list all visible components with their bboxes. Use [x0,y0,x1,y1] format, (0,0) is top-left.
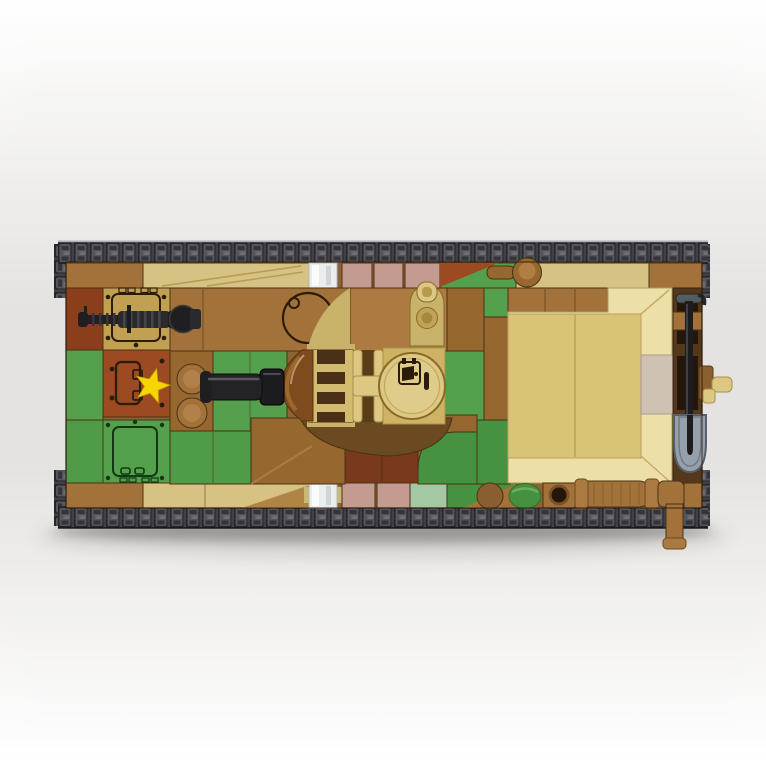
photo-stage [0,0,766,766]
headlight-glint [312,485,319,506]
icon-body [402,366,414,381]
rivet [134,343,139,348]
brick [342,263,372,288]
periscope-stud-inner [422,313,433,324]
grille-rung [309,384,353,392]
mg-front-sight [84,306,87,316]
rivet [160,359,165,364]
shovel-shaft [685,301,693,429]
muffler-collar [645,479,659,509]
track-bottom-shadow [58,527,708,529]
mg-mount-base [190,309,201,329]
gun-muzzle [200,371,212,403]
brick [410,483,447,508]
brick [66,350,103,420]
hull-bottom-row [66,483,516,508]
hatch-slot-print [424,372,429,390]
crank-handle [699,366,732,403]
tank-top-view [0,0,766,766]
icon-prong [402,358,406,364]
rivet [160,403,165,408]
muffler-collar [575,479,588,509]
round-stud [477,483,503,509]
brick [442,351,484,420]
rivet [110,367,115,372]
rivet [160,423,164,427]
headlight-shade [326,266,331,285]
brick [477,420,510,484]
crank-knob [712,377,732,392]
brick [66,483,143,508]
brick [377,483,410,508]
brick [684,483,702,508]
pin-hole [550,486,568,504]
rivet [106,295,111,300]
glacis-slope [143,263,309,288]
brick [508,288,608,314]
exhaust-tip [663,538,686,549]
engine-deck [508,288,673,483]
brick [342,483,375,508]
greige-tile [641,355,673,414]
brick [484,317,510,432]
stud-highlight [183,370,201,388]
exhaust-elbow [658,481,684,507]
rivet [133,420,137,424]
rivet [162,295,167,300]
grille-rung [309,404,353,412]
stud-highlight [183,404,201,422]
crank-tab [703,389,715,403]
track-top [58,242,708,264]
rivet [106,423,110,427]
periscope-lens [422,287,432,297]
brick [649,263,702,288]
icon-dot [414,372,418,376]
track-top-highlight [58,241,708,243]
brick [170,431,251,484]
brick [447,288,484,351]
rivet [106,476,110,480]
headlight-glint [312,265,319,286]
headlight-shade [326,486,331,505]
lamp-bar [487,266,515,279]
lamp-knob-highlight [519,263,536,280]
clip [337,487,342,503]
icon-prong [412,358,416,364]
mg-sight-bar [127,305,131,333]
rivet [110,396,115,401]
grille-rung [309,364,353,372]
brick [374,263,403,288]
rivet [106,336,111,341]
rivet [160,476,164,480]
clip [304,487,309,503]
exhaust-downpipe [666,504,683,542]
track-bottom [58,506,708,528]
brick [66,420,103,483]
brick [66,263,143,288]
rivet [162,336,167,341]
blade-shaft-slot [687,415,693,455]
